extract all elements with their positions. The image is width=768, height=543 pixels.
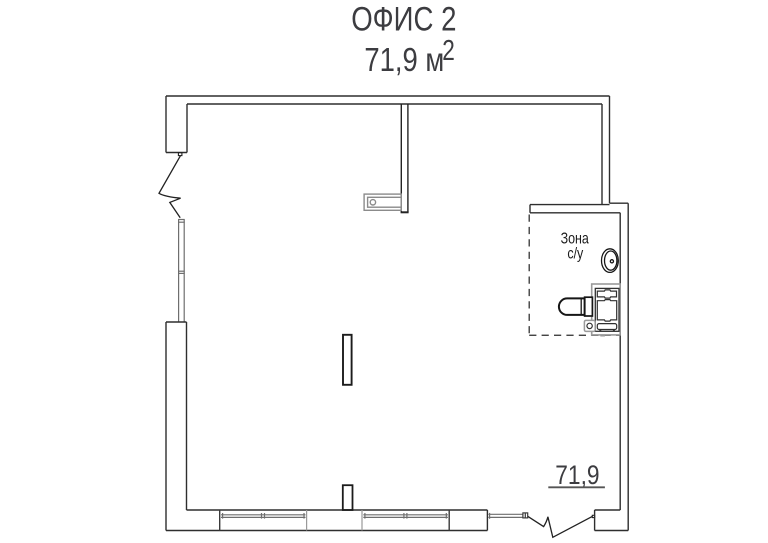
svg-text:71,9 м: 71,9 м (364, 43, 444, 79)
svg-text:с/у: с/у (567, 244, 584, 262)
svg-text:2: 2 (442, 33, 455, 66)
svg-text:71,9: 71,9 (555, 460, 599, 490)
svg-text:ОФИС 2: ОФИС 2 (351, 0, 456, 38)
